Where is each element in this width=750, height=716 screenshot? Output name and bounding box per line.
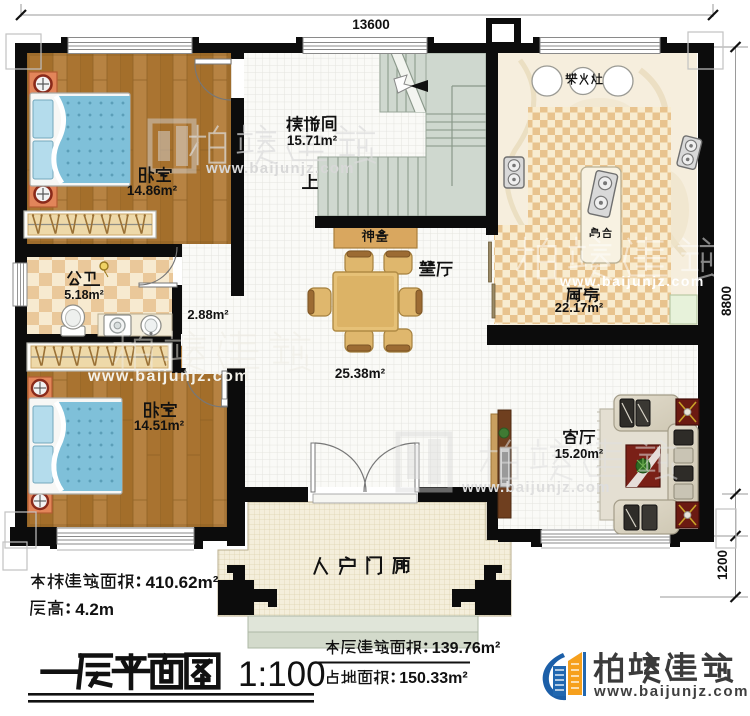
svg-text:1200: 1200 xyxy=(715,550,730,580)
svg-text:139.76m²: 139.76m² xyxy=(432,640,501,657)
svg-text:14.86m²: 14.86m² xyxy=(127,183,178,198)
svg-text:www.baijunjz.com: www.baijunjz.com xyxy=(593,683,749,700)
svg-text:2.88m²: 2.88m² xyxy=(187,307,229,322)
svg-text:22.17m²: 22.17m² xyxy=(555,300,604,315)
svg-text:150.33m²: 150.33m² xyxy=(399,670,468,687)
svg-text:1:100: 1:100 xyxy=(238,655,326,694)
svg-text:13600: 13600 xyxy=(352,17,390,32)
svg-text:25.38m²: 25.38m² xyxy=(335,366,386,381)
svg-text:www.baijunjz.com: www.baijunjz.com xyxy=(205,160,355,177)
svg-text:8800: 8800 xyxy=(719,286,734,316)
svg-text:14.51m²: 14.51m² xyxy=(134,418,185,433)
svg-text:15.71m²: 15.71m² xyxy=(287,133,338,148)
svg-text:4.2m: 4.2m xyxy=(75,600,114,619)
svg-text:410.62m²: 410.62m² xyxy=(146,573,219,592)
svg-text:www.baijunjz.com: www.baijunjz.com xyxy=(461,479,611,496)
svg-text:5.18m²: 5.18m² xyxy=(64,288,104,302)
svg-text:15.20m²: 15.20m² xyxy=(555,446,604,461)
svg-text:www.baijunjz.com: www.baijunjz.com xyxy=(87,368,250,385)
svg-text:www.baijunjz.com: www.baijunjz.com xyxy=(559,273,705,289)
